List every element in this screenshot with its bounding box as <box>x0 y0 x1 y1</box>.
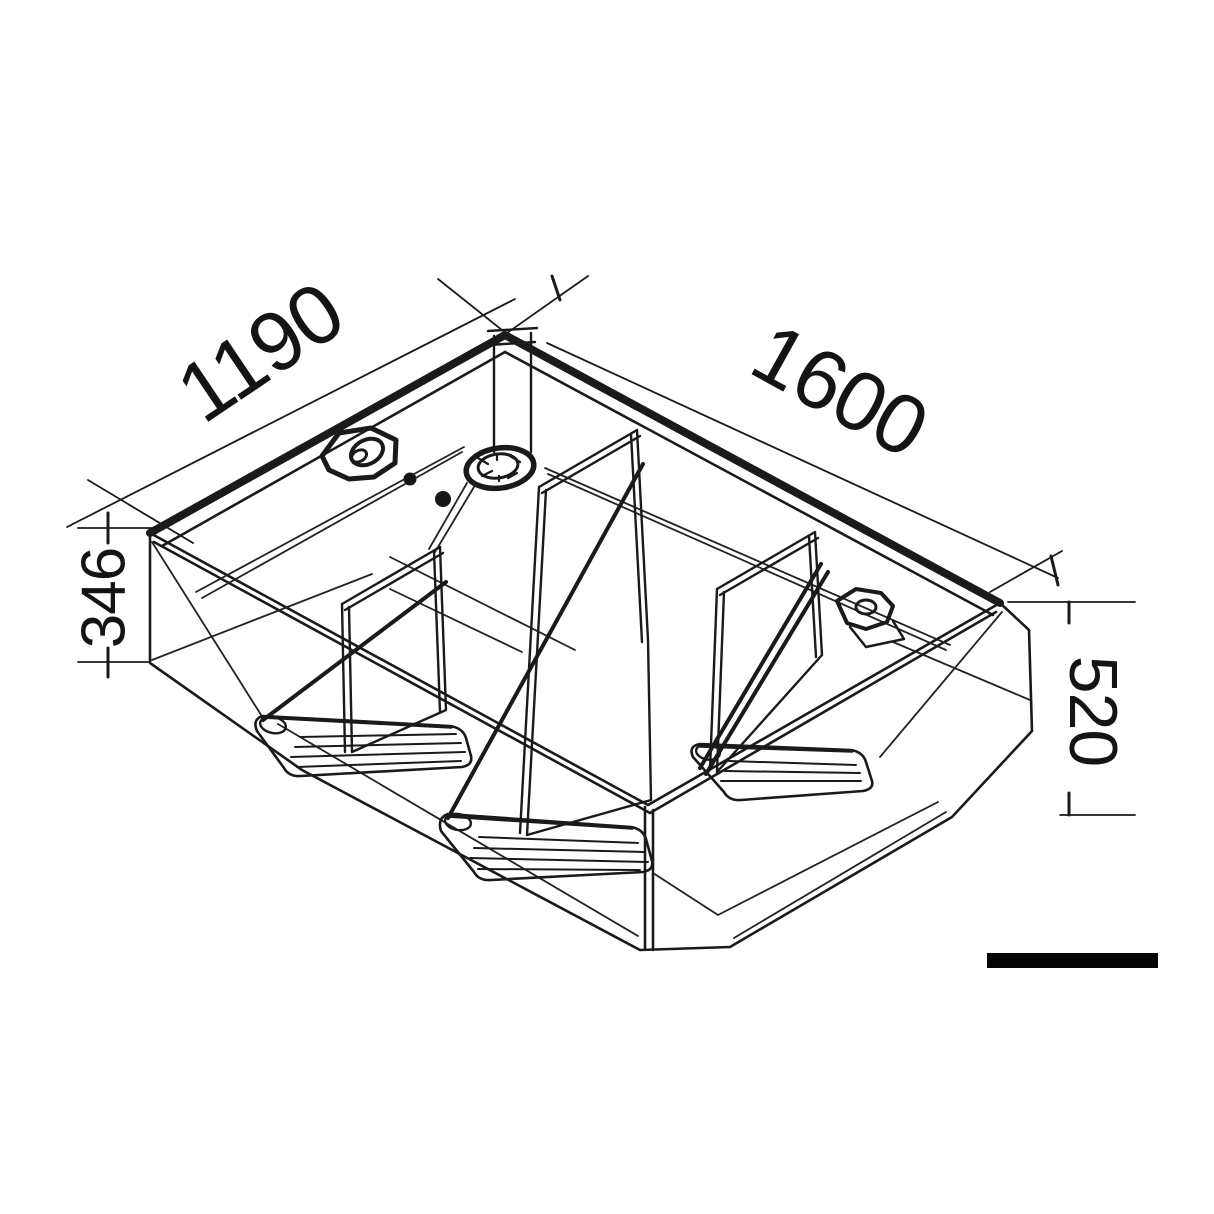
dimension-1600-label: 1600 <box>737 305 943 476</box>
inspection-port <box>464 443 537 492</box>
outlet-fitting <box>837 589 904 647</box>
interior-floor-and-fold-lines <box>152 447 1030 938</box>
bolt-dot-1 <box>404 473 417 486</box>
dimension-1190-label: 1190 <box>160 264 359 441</box>
baffle-left-brace <box>263 582 446 720</box>
baffle-right-sled-rails <box>721 761 861 781</box>
dimension-height-right-520: 520 <box>1008 602 1135 815</box>
dimension-height-left-346: 346 <box>70 513 163 677</box>
technical-drawing-page: 1190 1600 346 520 <box>0 0 1214 1214</box>
scale-bar <box>987 953 1158 968</box>
top-face-bolts <box>404 473 452 508</box>
dimension-width-1600: 1600 <box>507 276 1062 592</box>
baffle-middle-strap <box>448 816 632 828</box>
bolt-dot-2 <box>435 491 451 507</box>
outlet-fitting-ring <box>856 600 876 614</box>
tank-interior-lines <box>152 447 1030 938</box>
baffle-left-strap <box>263 717 451 727</box>
inspection-port-flange <box>464 443 537 492</box>
tank-drawing-canvas: 1190 1600 346 520 <box>0 0 1214 1214</box>
dimension-346-label: 346 <box>70 548 139 648</box>
outlet-fitting-body <box>837 589 893 629</box>
dimension-520-label: 520 <box>1055 656 1131 766</box>
baffle-middle <box>440 430 652 880</box>
baffle-right-strap <box>700 746 852 751</box>
baffle-left-sled-rails <box>291 734 465 767</box>
